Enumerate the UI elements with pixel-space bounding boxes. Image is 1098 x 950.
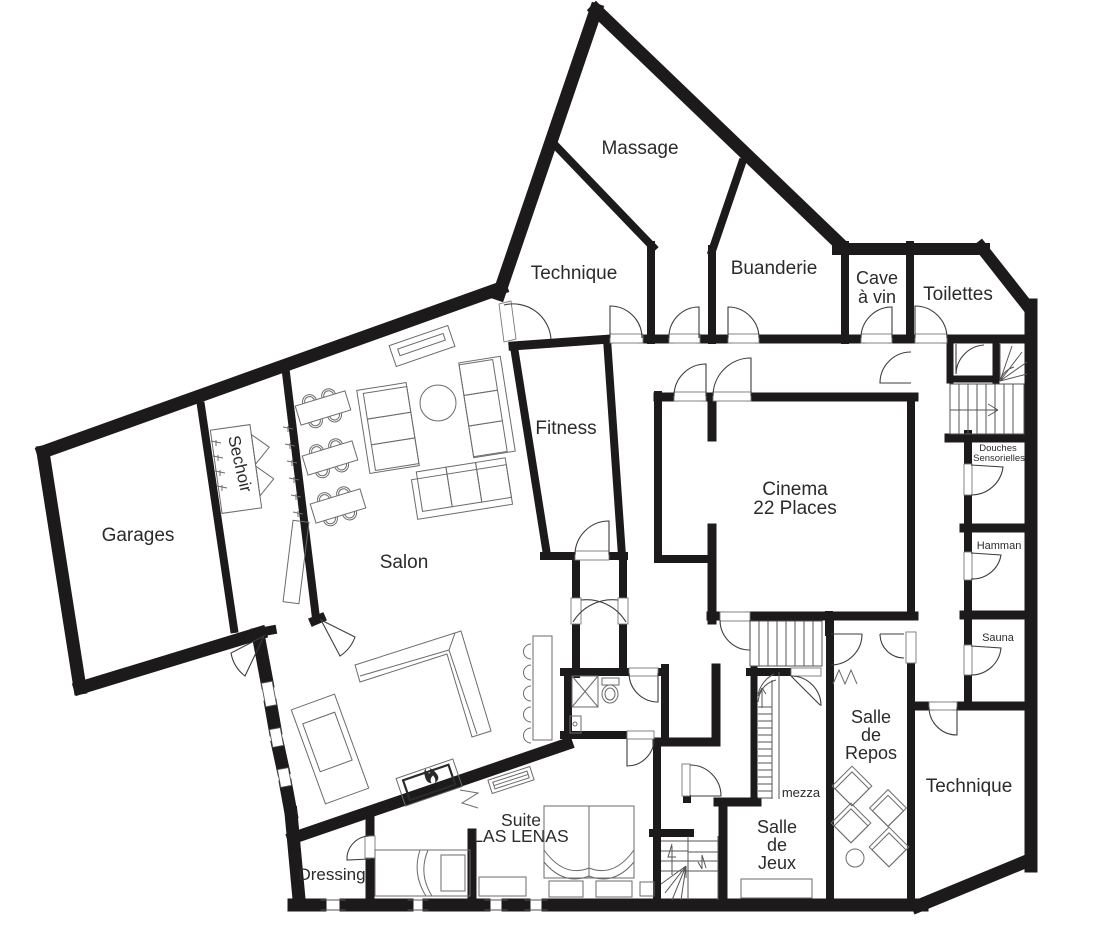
svg-text:Cinema: Cinema: [762, 479, 828, 500]
svg-text:Dressing: Dressing: [298, 865, 365, 884]
svg-text:Sauna: Sauna: [982, 632, 1015, 644]
svg-text:mezza: mezza: [782, 785, 821, 800]
svg-text:Technique: Technique: [926, 776, 1013, 797]
svg-text:Salle: Salle: [851, 707, 891, 727]
svg-text:Repos: Repos: [845, 743, 897, 763]
svg-text:Technique: Technique: [531, 263, 618, 284]
svg-text:Jeux: Jeux: [758, 853, 796, 873]
svg-text:Fitness: Fitness: [535, 418, 596, 439]
svg-text:Massage: Massage: [601, 138, 678, 159]
svg-text:Buanderie: Buanderie: [731, 258, 818, 279]
svg-text:22 Places: 22 Places: [753, 498, 836, 519]
svg-text:de: de: [861, 725, 881, 745]
svg-text:Toilettes: Toilettes: [923, 284, 993, 305]
svg-text:Salon: Salon: [380, 552, 429, 573]
svg-text:Hamman: Hamman: [977, 540, 1022, 552]
svg-text:Salle: Salle: [757, 817, 797, 837]
svg-text:Cave: Cave: [856, 268, 898, 288]
svg-text:Garages: Garages: [102, 525, 175, 546]
svg-text:Sensorielles: Sensorielles: [973, 453, 1025, 464]
svg-text:de: de: [767, 835, 787, 855]
svg-text:LAS LENAS: LAS LENAS: [473, 826, 568, 846]
svg-text:à vin: à vin: [858, 287, 896, 307]
